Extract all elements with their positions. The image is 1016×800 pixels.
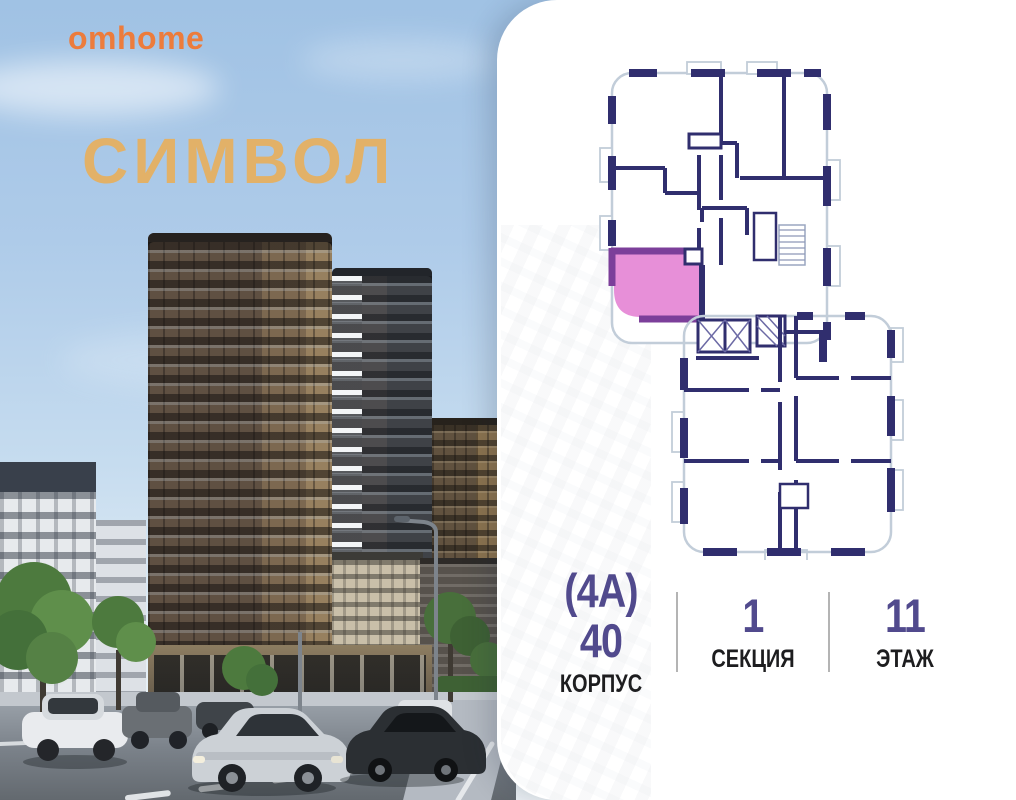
bathroom — [780, 484, 808, 508]
korpus-label: КОРПУС — [545, 671, 657, 698]
stats-divider — [676, 592, 678, 672]
stat-sektsiya: 1 СЕКЦИЯ — [683, 591, 823, 673]
closet — [689, 134, 721, 148]
highlighted-unit[interactable] — [611, 248, 702, 319]
sektsiya-value: 1 — [694, 591, 812, 641]
stat-korpus: (4А) 40 КОРПУС — [531, 566, 671, 698]
project-title: СИМВОЛ — [82, 124, 395, 198]
etazh-value: 11 — [846, 591, 964, 641]
elevator — [754, 213, 776, 260]
street-scene — [0, 0, 516, 800]
unit-entrance — [685, 249, 702, 264]
brand-logo: omhome — [68, 20, 204, 57]
apartment-card: (4А) 40 КОРПУС 1 СЕКЦИЯ 11 ЭТАЖ — [497, 0, 1016, 800]
sektsiya-label: СЕКЦИЯ — [697, 646, 809, 673]
stairs — [779, 225, 805, 265]
korpus-value: (4А) 40 — [542, 566, 660, 666]
etazh-label: ЭТАЖ — [849, 646, 961, 673]
apartment-stats: (4А) 40 КОРПУС 1 СЕКЦИЯ 11 ЭТАЖ — [531, 566, 983, 698]
screenshot-root: omhome СИМВОЛ — [0, 0, 1016, 800]
stat-etazh: 11 ЭТАЖ — [835, 591, 975, 673]
lamp-head — [394, 516, 410, 522]
floor-plan — [599, 60, 905, 560]
dark-sedan — [340, 706, 486, 787]
stats-divider — [828, 592, 830, 672]
